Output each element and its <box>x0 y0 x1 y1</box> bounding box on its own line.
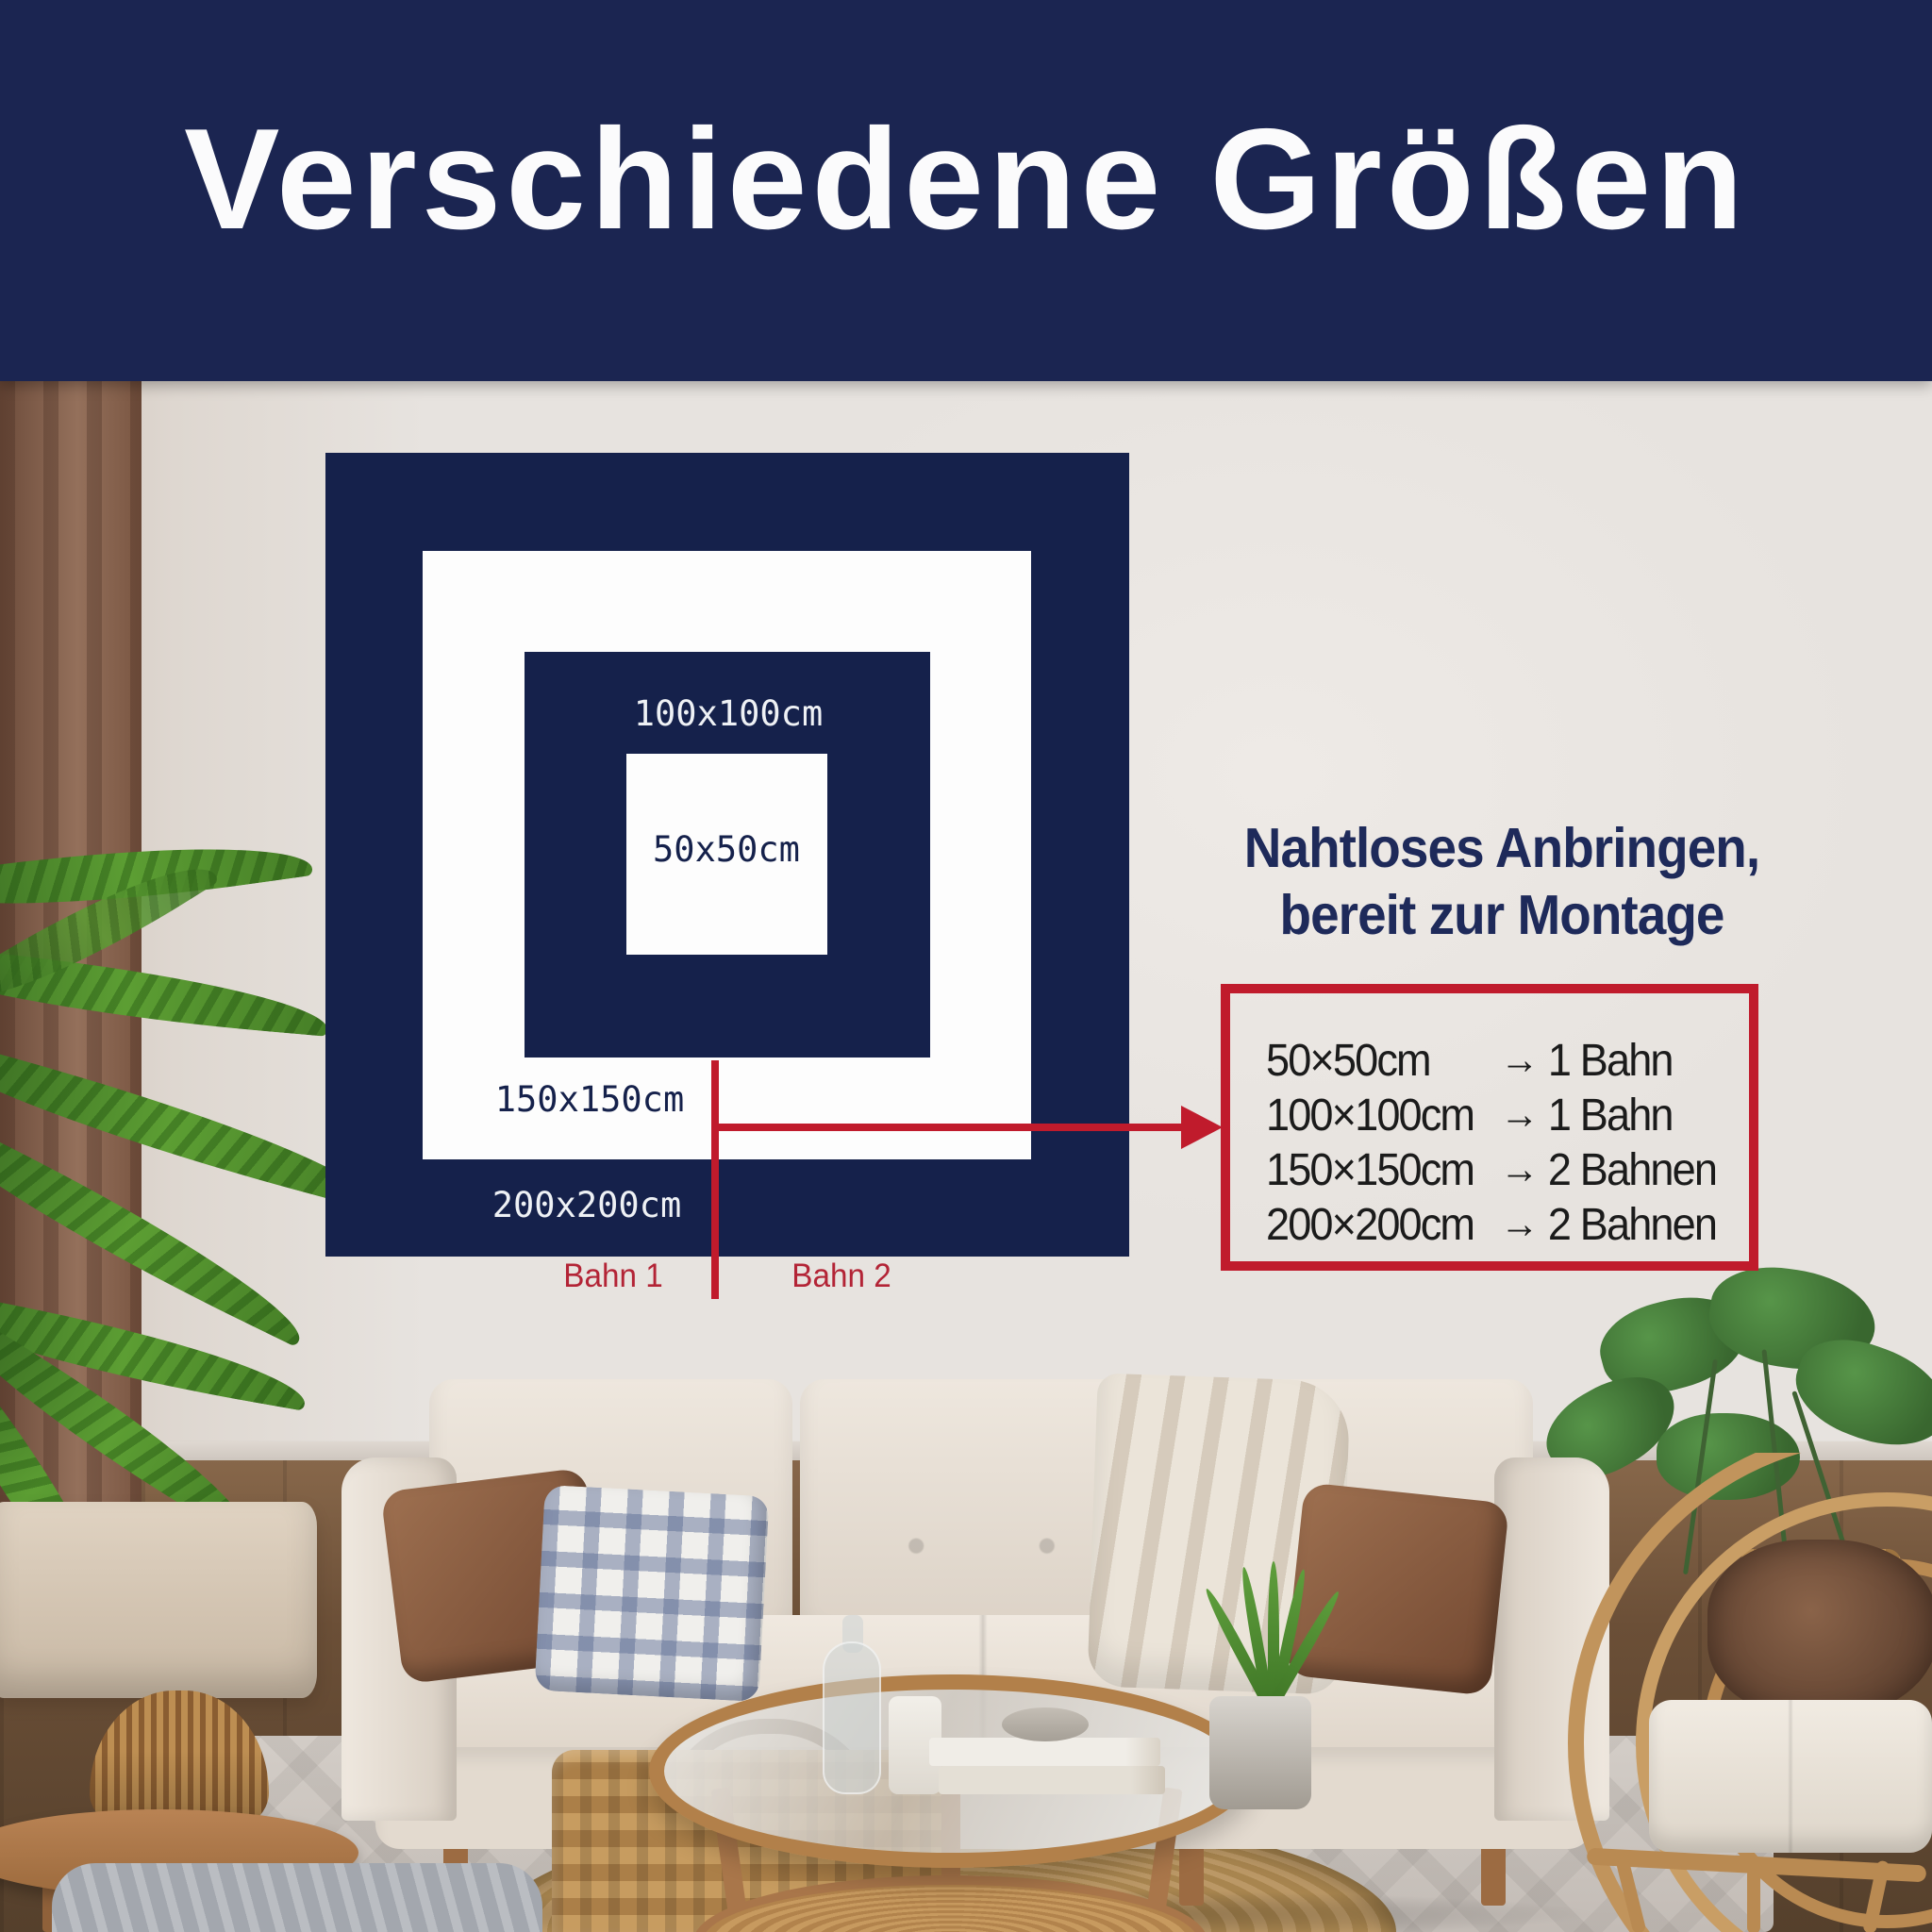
row-size: 200×200cm <box>1266 1199 1490 1251</box>
fur-pillow <box>1707 1540 1932 1717</box>
table-plant-pot <box>1209 1696 1311 1809</box>
pointer-arrow-icon <box>1181 1106 1223 1149</box>
book <box>939 1766 1165 1794</box>
right-arrow-icon: → <box>1490 1091 1548 1139</box>
right-arrow-icon: → <box>1490 1146 1548 1193</box>
chair-cushion <box>1649 1700 1932 1853</box>
size-label-150x150: 150x150cm <box>439 1077 741 1123</box>
floor-cushion <box>52 1863 542 1932</box>
brown-pillow-right <box>1285 1482 1509 1696</box>
right-arrow-icon: → <box>1490 1037 1548 1084</box>
sofa-leg <box>1481 1841 1506 1906</box>
decor-bowl <box>1002 1707 1089 1741</box>
glass-decanter <box>823 1641 881 1794</box>
bahn-2-label: Bahn 2 <box>743 1257 941 1295</box>
panel-heading-line1: Nahtloses Anbringen, <box>1212 815 1791 882</box>
right-arrow-icon: → <box>1490 1201 1548 1248</box>
rattan-chair <box>1558 1453 1932 1932</box>
book <box>929 1738 1160 1766</box>
sofa-leg <box>1179 1841 1204 1906</box>
size-label-200x200: 200x200cm <box>436 1183 738 1228</box>
pointer-line <box>711 1124 1183 1131</box>
panel-heading-line2: bereit zur Montage <box>1212 882 1791 949</box>
row-size: 50×50cm <box>1266 1035 1490 1087</box>
product-size-infographic: Verschiedene Größen 100x100cm 50x50cm 15… <box>0 0 1932 1932</box>
row-result: 2 Bahnen <box>1548 1199 1720 1251</box>
seam-divider-line <box>711 1060 719 1299</box>
floor-lamp-shade <box>0 1502 317 1698</box>
row-size: 100×100cm <box>1266 1090 1490 1141</box>
info-row: 150×150cm → 2 Bahnen <box>1266 1142 1720 1197</box>
size-label-50x50: 50x50cm <box>575 827 877 873</box>
info-row: 200×200cm → 2 Bahnen <box>1266 1197 1720 1252</box>
size-label-100x100: 100x100cm <box>577 691 879 737</box>
bahnen-info-box: 50×50cm → 1 Bahn 100×100cm → 1 Bahn 150×… <box>1221 984 1758 1271</box>
bahn-1-label: Bahn 1 <box>515 1257 712 1295</box>
page-title: Verschiedene Größen <box>184 97 1748 262</box>
info-row: 50×50cm → 1 Bahn <box>1266 1033 1720 1088</box>
row-result: 2 Bahnen <box>1548 1144 1720 1196</box>
row-result: 1 Bahn <box>1548 1090 1720 1141</box>
panel-heading: Nahtloses Anbringen, bereit zur Montage <box>1212 815 1791 949</box>
row-size: 150×150cm <box>1266 1144 1490 1196</box>
row-result: 1 Bahn <box>1548 1035 1720 1087</box>
title-banner: Verschiedene Größen <box>0 0 1932 381</box>
info-row: 100×100cm → 1 Bahn <box>1266 1088 1720 1142</box>
chair-leg <box>1747 1868 1760 1932</box>
gingham-pillow <box>534 1485 769 1702</box>
